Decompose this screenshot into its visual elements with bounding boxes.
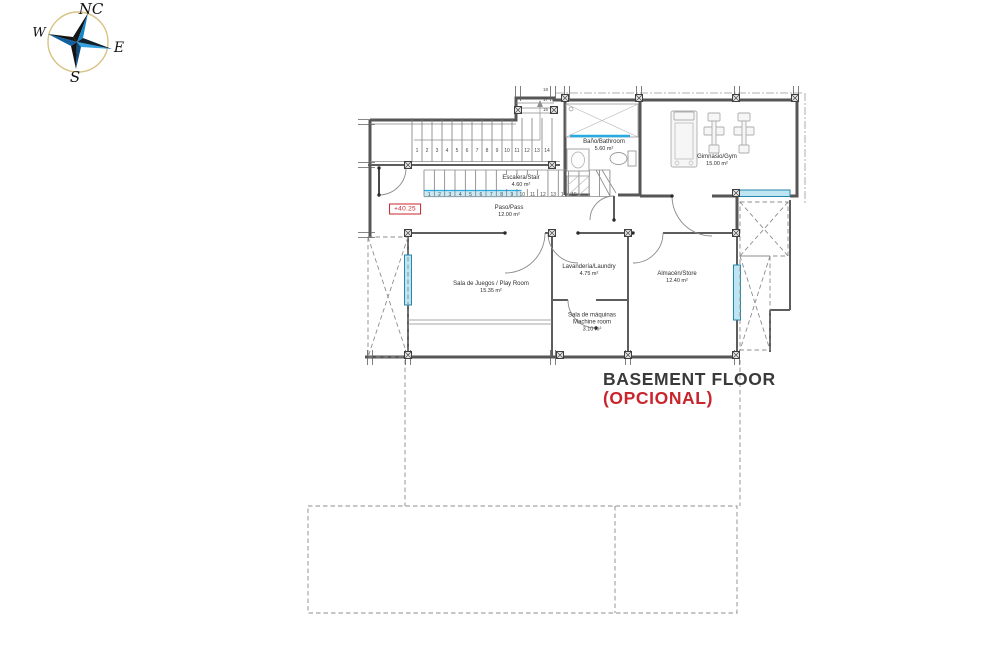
room-label-gym: Gimnasio/Gym 15.00 m² [697, 154, 737, 168]
elevation-marker: +40.25 [389, 204, 421, 215]
exercise-bike-icon [704, 113, 724, 153]
floor-title-name: BASEMENT FLOOR [603, 370, 776, 389]
exercise-bike-icon [734, 113, 754, 153]
toilet-icon [610, 151, 636, 166]
floor-title-qualifier: (OPCIONAL) [603, 389, 776, 408]
stair-flight1-numbers: 1234567891011121314 [412, 148, 552, 154]
room-label-stair: Escalera/Stair 4.60 m² [500, 175, 541, 189]
treadmill-icon [671, 111, 697, 167]
room-label-laundry: Lavandería/Laundry 4.75 m² [562, 264, 615, 278]
room-label-bathroom: Baño/Bathroom 5.60 m² [583, 139, 625, 153]
store-window [734, 265, 741, 320]
stair-flight2-numbers: 123456789101112131415 [424, 192, 579, 198]
stair-corner-numbers: 181716 [543, 85, 548, 115]
room-label-hall: Paso/Pass 12.00 m² [495, 205, 524, 219]
floor-title: BASEMENT FLOOR (OPCIONAL) [603, 370, 776, 408]
playroom-bench [408, 320, 552, 324]
lightwell-hatch-right [740, 202, 788, 350]
floor-plan [0, 0, 1000, 666]
gym-window [737, 190, 790, 197]
lightwell-hatch-left [368, 237, 408, 357]
door-hinge-dots [377, 166, 673, 329]
room-label-machine: Sala de máquinas Machine room 3.10 m² [568, 313, 616, 334]
shower-icon [566, 104, 638, 137]
room-label-playroom: Sala de Juegos / Play Room 15.35 m² [453, 281, 529, 295]
floorplan-page: NC W E S [0, 0, 1000, 666]
room-label-store: Almacén/Store 12.40 m² [657, 271, 696, 285]
